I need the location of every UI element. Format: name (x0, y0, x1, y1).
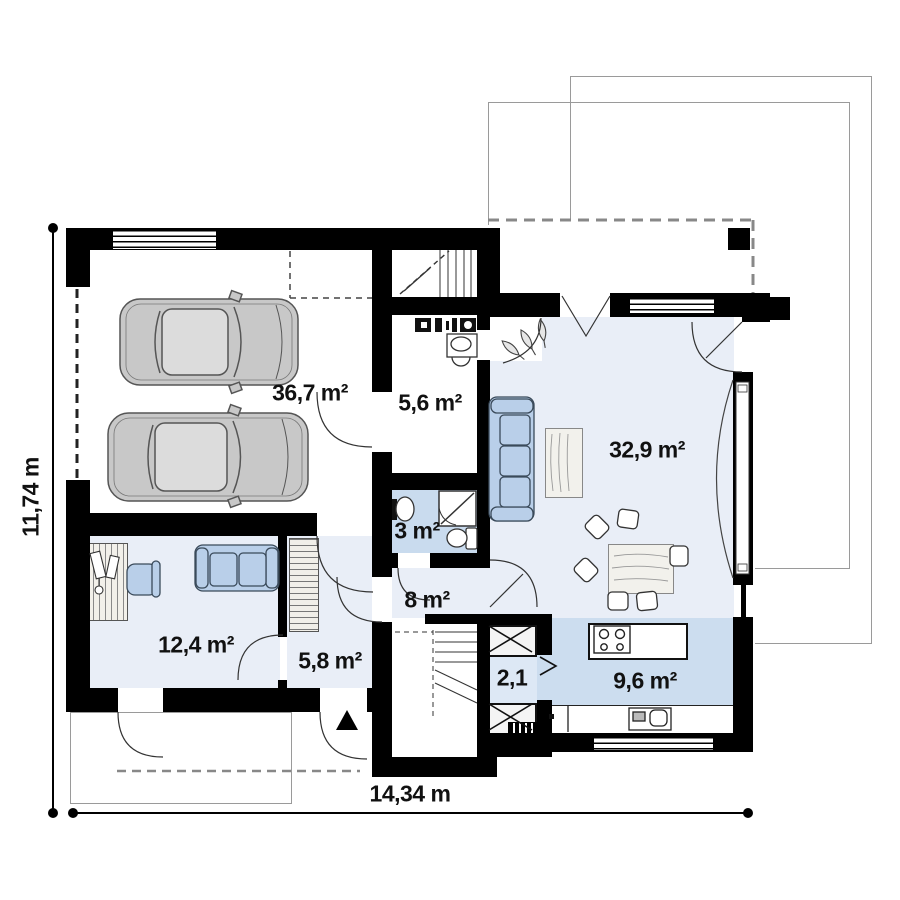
wall (372, 452, 392, 577)
wall (66, 480, 90, 536)
wall (66, 536, 90, 712)
wall (392, 553, 398, 568)
wall (500, 293, 560, 317)
room-label-utility: 5,6 m² (398, 390, 461, 417)
wall (430, 553, 490, 568)
wall (742, 293, 770, 322)
wall (425, 614, 477, 624)
wall (733, 372, 753, 585)
wall (477, 733, 552, 757)
room-label-hall: 8 m² (404, 587, 449, 614)
room-label-bathroom: 3 m² (394, 518, 439, 545)
wall (367, 688, 392, 712)
wall (372, 250, 392, 392)
room-utility (392, 250, 477, 473)
room-label-living: 32,9 m² (609, 437, 685, 464)
wall (372, 757, 497, 777)
wall (477, 250, 500, 317)
room-label-kitchen: 9,6 m² (613, 668, 676, 695)
wall (90, 688, 118, 712)
wall (477, 360, 490, 568)
window-garage (112, 229, 217, 250)
wall (278, 536, 287, 637)
wall (770, 297, 790, 320)
room-label-office: 12,4 m² (158, 632, 234, 659)
pantry-shelf-top (488, 625, 537, 657)
wall (477, 315, 490, 330)
window-kitchen (593, 736, 714, 751)
desk (86, 543, 128, 621)
dimension-width-label: 14,34 m (370, 781, 451, 808)
stairwell (392, 622, 477, 757)
porch-outline (70, 712, 292, 804)
wall (66, 250, 90, 287)
room-label-garage: 36,7 m² (272, 380, 348, 407)
wall (90, 513, 317, 536)
terrace-pillar (728, 228, 750, 250)
wardrobe (289, 538, 319, 632)
door-notch (490, 317, 542, 361)
window-living (629, 297, 715, 314)
wall (392, 473, 490, 490)
wall (392, 297, 490, 315)
wall (537, 614, 552, 655)
terrace (490, 221, 752, 293)
kitchen-island (588, 623, 688, 660)
dimension-line-horizontal (68, 808, 753, 818)
wall (163, 688, 320, 712)
room-label-entry: 5,8 m² (298, 648, 361, 675)
dimension-height-label: 11,74 m (18, 457, 45, 537)
wall (537, 700, 552, 733)
dimension-line-vertical (48, 223, 58, 818)
floor-plan: 36,7 m² 5,6 m² 3 m² 8 m² 32,9 m² 12,4 m²… (0, 0, 900, 900)
kitchen-counter (537, 705, 735, 735)
wall (741, 585, 746, 618)
wall (733, 617, 753, 752)
coffee-table (545, 428, 583, 498)
room-label-pantry: 2,1 (497, 665, 527, 692)
dining-table (608, 544, 674, 594)
